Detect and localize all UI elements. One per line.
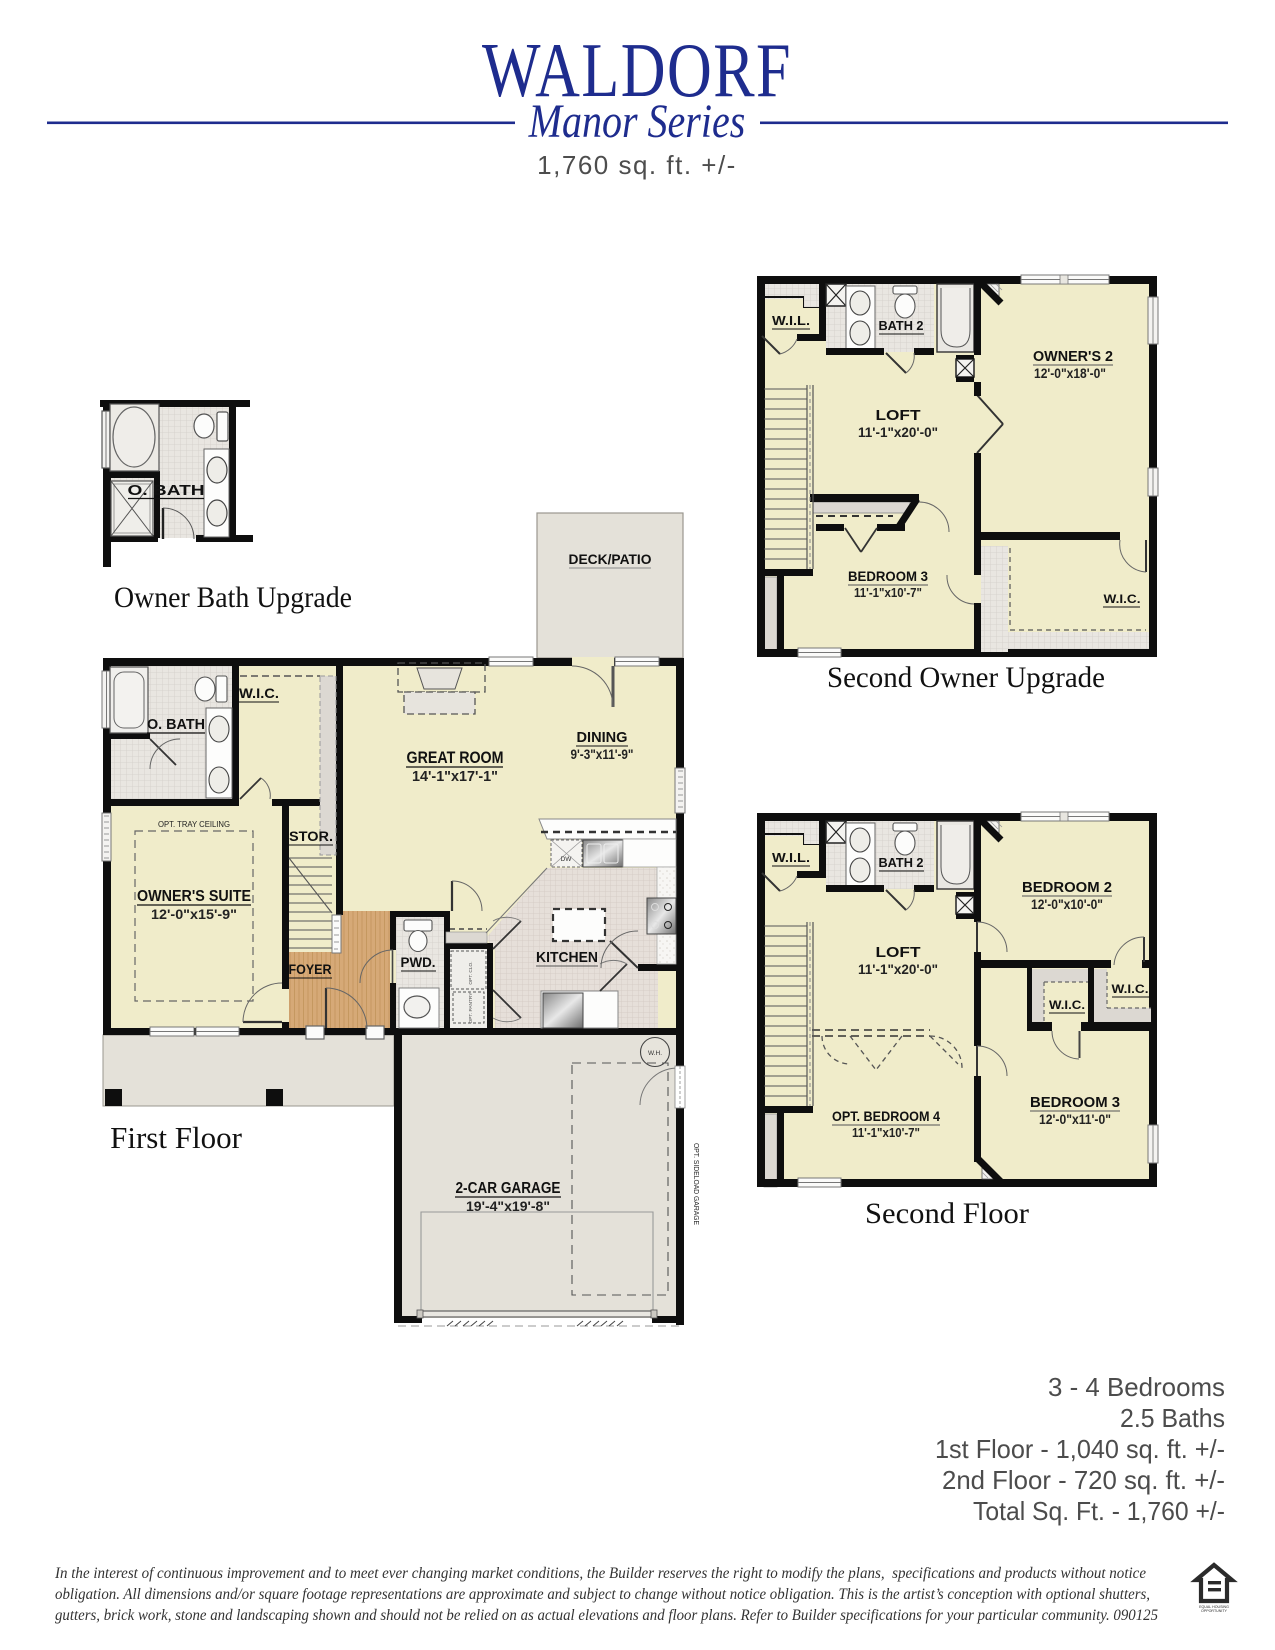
svg-text:12'-0"x10'-0": 12'-0"x10'-0"	[1031, 897, 1103, 912]
svg-text:In the interest of continuous: In the interest of continuous improvemen…	[54, 1565, 1146, 1582]
svg-text:W.I.C.: W.I.C.	[1049, 1000, 1085, 1012]
svg-text:BATH 2: BATH 2	[879, 855, 924, 870]
svg-text:BEDROOM 3: BEDROOM 3	[848, 568, 928, 584]
svg-text:DECK/PATIO: DECK/PATIO	[569, 551, 652, 567]
svg-text:O. BATH: O. BATH	[128, 483, 205, 499]
svg-text:OWNER'S 2: OWNER'S 2	[1033, 349, 1113, 365]
svg-text:Owner Bath Upgrade: Owner Bath Upgrade	[114, 581, 352, 614]
svg-text:2nd Floor - 720 sq. ft. +/-: 2nd Floor - 720 sq. ft. +/-	[942, 1465, 1225, 1495]
svg-text:9'-3"x11'-9": 9'-3"x11'-9"	[571, 747, 634, 762]
svg-text:O. BATH: O. BATH	[147, 717, 205, 733]
svg-text:Manor Series: Manor Series	[528, 94, 746, 147]
svg-text:2-CAR GARAGE: 2-CAR GARAGE	[456, 1180, 561, 1197]
svg-text:2.5 Baths: 2.5 Baths	[1120, 1403, 1225, 1433]
svg-text:DINING: DINING	[577, 729, 628, 746]
svg-text:W.H.: W.H.	[648, 1050, 662, 1057]
svg-text:LOFT: LOFT	[876, 408, 921, 424]
svg-text:BEDROOM 2: BEDROOM 2	[1022, 880, 1112, 896]
svg-text:W.I.L.: W.I.L.	[772, 314, 810, 328]
svg-text:PWD.: PWD.	[401, 955, 436, 970]
svg-text:OPT. TRAY CEILING: OPT. TRAY CEILING	[158, 819, 230, 829]
svg-text:1st Floor - 1,040 sq. ft. +/-: 1st Floor - 1,040 sq. ft. +/-	[935, 1434, 1225, 1464]
svg-text:BATH 2: BATH 2	[879, 318, 924, 333]
svg-text:STOR.: STOR.	[289, 829, 333, 844]
svg-text:LOFT: LOFT	[876, 945, 921, 961]
svg-text:OPT. CLO.: OPT. CLO.	[468, 961, 474, 984]
svg-text:First Floor: First Floor	[110, 1120, 242, 1155]
svg-text:11'-1"x10'-7": 11'-1"x10'-7"	[852, 1126, 920, 1140]
svg-text:12'-0"x18'-0": 12'-0"x18'-0"	[1034, 366, 1106, 381]
svg-text:Total Sq. Ft. - 1,760 +/-: Total Sq. Ft. - 1,760 +/-	[973, 1496, 1225, 1526]
svg-text:FOYER: FOYER	[289, 962, 332, 977]
svg-text:Second Floor: Second Floor	[865, 1197, 1029, 1230]
svg-text:OPT. BEDROOM 4: OPT. BEDROOM 4	[832, 1108, 940, 1124]
svg-text:11'-1"x10'-7": 11'-1"x10'-7"	[854, 586, 922, 600]
svg-text:W.I.L.: W.I.L.	[772, 851, 810, 865]
svg-text:12'-0"x15'-9": 12'-0"x15'-9"	[151, 906, 237, 922]
svg-text:OPT. SIDELOAD GARAGE: OPT. SIDELOAD GARAGE	[692, 1143, 701, 1225]
svg-text:obligation. All dimensions and: obligation. All dimensions and/or square…	[55, 1586, 1150, 1603]
svg-text:gutters, brick work, stone and: gutters, brick work, stone and landscapi…	[55, 1607, 1158, 1624]
svg-text:12'-0"x11'-0": 12'-0"x11'-0"	[1039, 1112, 1111, 1127]
svg-text:OPT. PANTRY: OPT. PANTRY	[468, 992, 474, 1024]
svg-text:GREAT ROOM: GREAT ROOM	[407, 749, 504, 767]
svg-text:11'-1"x20'-0": 11'-1"x20'-0"	[858, 425, 938, 440]
svg-text:OWNER'S SUITE: OWNER'S SUITE	[137, 888, 251, 905]
svg-text:14'-1"x17'-1": 14'-1"x17'-1"	[412, 769, 498, 785]
svg-text:W.I.C.: W.I.C.	[1104, 592, 1141, 606]
svg-text:BEDROOM 3: BEDROOM 3	[1030, 1095, 1120, 1111]
svg-text:1,760 sq. ft. +/-: 1,760 sq. ft. +/-	[537, 150, 737, 180]
svg-text:KITCHEN: KITCHEN	[536, 949, 598, 966]
svg-text:DW: DW	[561, 856, 573, 863]
svg-text:OPPORTUNITY: OPPORTUNITY	[1201, 1609, 1227, 1613]
svg-text:3 - 4 Bedrooms: 3 - 4 Bedrooms	[1048, 1372, 1225, 1402]
svg-text:11'-1"x20'-0": 11'-1"x20'-0"	[858, 962, 938, 977]
svg-text:W.I.C.: W.I.C.	[239, 686, 279, 701]
svg-text:W.I.C.: W.I.C.	[1112, 982, 1149, 996]
svg-text:Second Owner Upgrade: Second Owner Upgrade	[827, 661, 1105, 694]
